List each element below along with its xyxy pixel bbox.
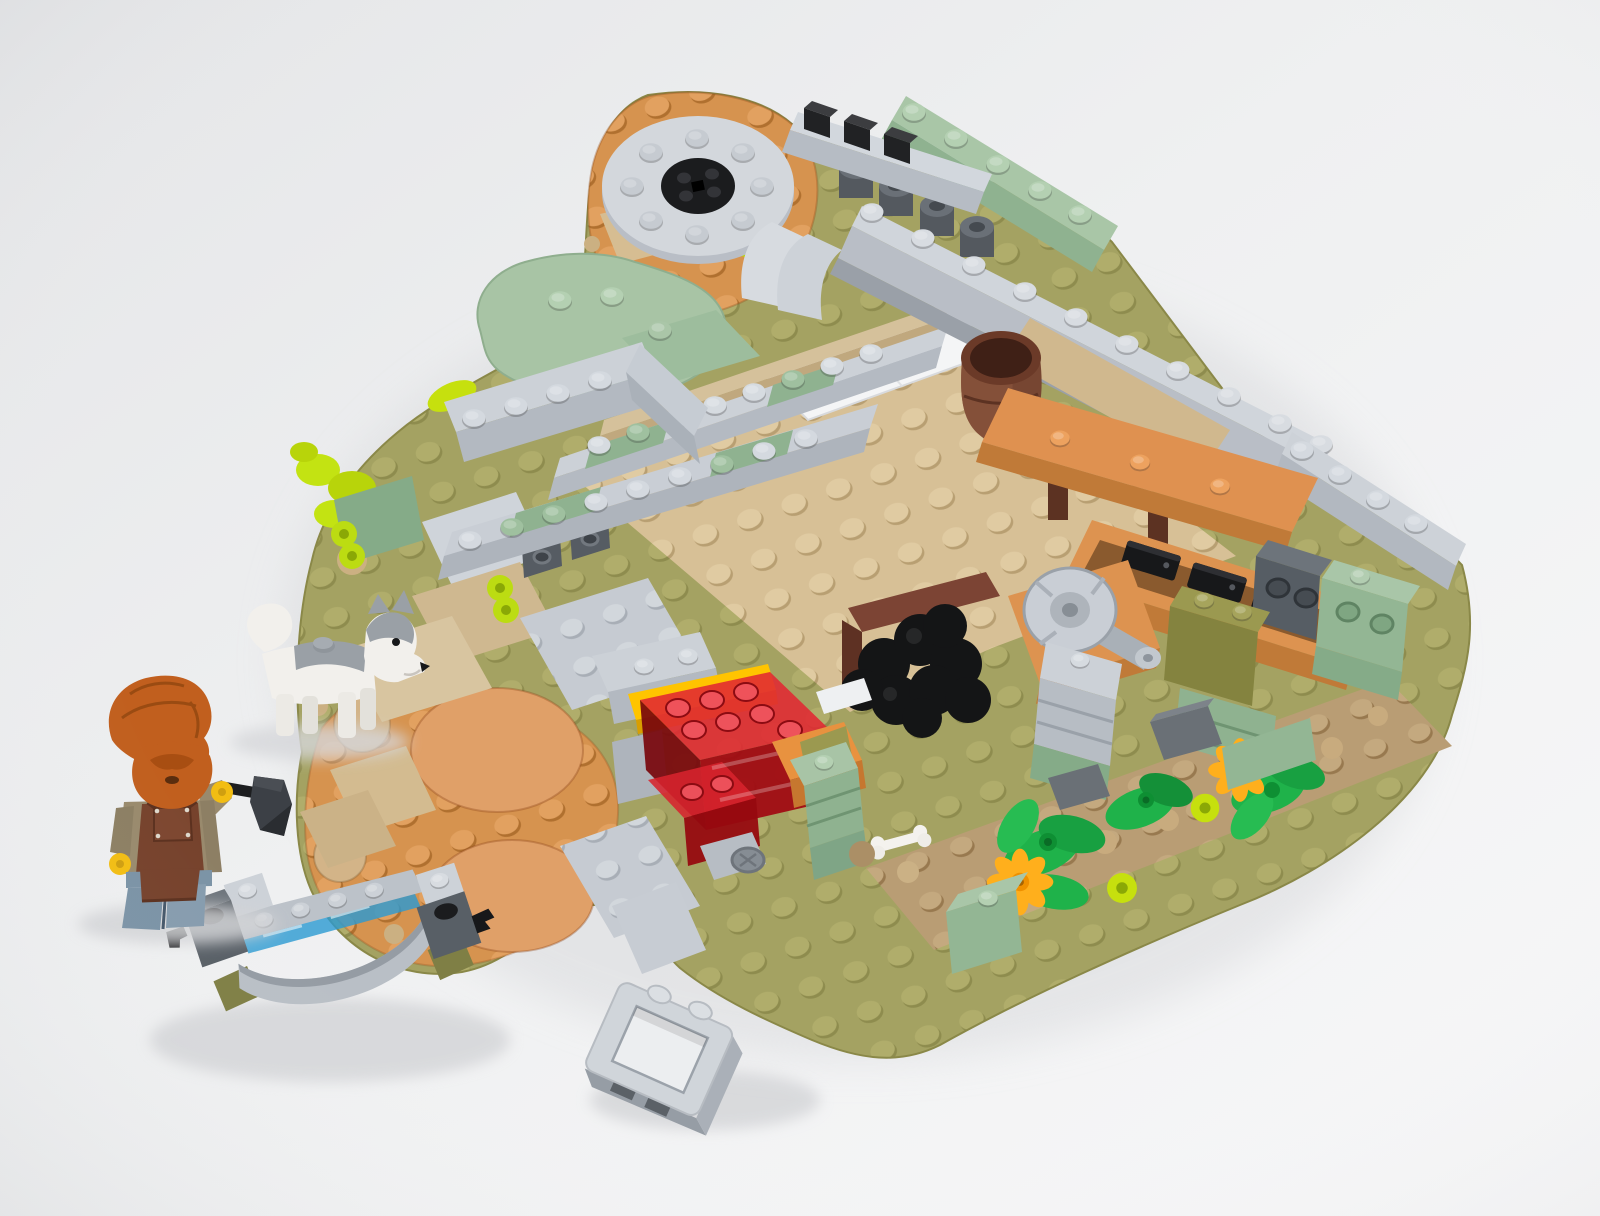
lego-build-photograph <box>0 0 1600 1216</box>
lego-scene-svg <box>0 0 1600 1216</box>
photo-vignette <box>0 0 1600 1216</box>
